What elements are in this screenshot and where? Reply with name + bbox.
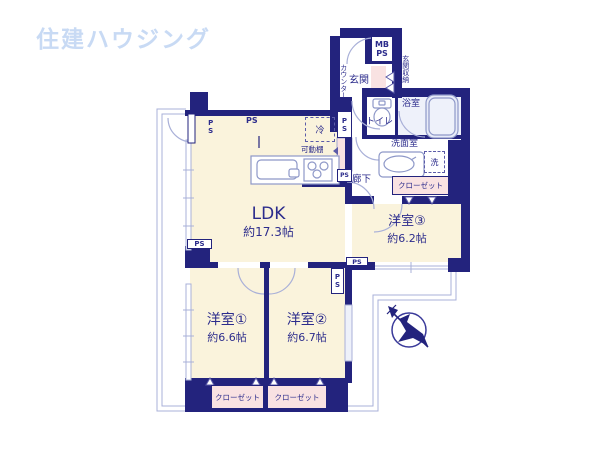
room-size-bedroom2: 約6.7帖	[272, 332, 342, 344]
hallway-label: 廊下	[352, 175, 371, 185]
ps-box-kitchen: PS	[337, 169, 352, 182]
compass-icon	[387, 305, 428, 347]
room-size-bedroom1: 約6.6帖	[192, 332, 262, 344]
closet-bedroom3: クローゼット	[392, 176, 449, 195]
ps-label-ldk-west: PS	[206, 119, 214, 135]
room-label-bedroom1: 洋室①	[192, 313, 262, 328]
vanity-icon	[379, 152, 424, 177]
fridge-box: 冷	[305, 117, 335, 142]
ps-label: PS	[376, 49, 388, 58]
room-size-bedroom3: 約6.2帖	[372, 233, 442, 245]
closet-bedroom2: クローゼット	[267, 385, 327, 409]
toilet-label: トイレ	[366, 118, 393, 128]
mb-label: MB	[375, 40, 389, 49]
closet-bedroom1: クローゼット	[211, 385, 264, 409]
washer-label: 洗	[431, 157, 439, 168]
fridge-label: 冷	[315, 123, 324, 136]
counter-label: カウンター	[339, 64, 347, 99]
movable-shelf-label: 可動棚	[301, 146, 324, 154]
bathtub-icon	[426, 95, 458, 138]
washroom-label: 洗面室	[391, 140, 418, 150]
floorplan-page: 住建ハウジング LDK 約17.3帖 洋室① 約6.6帖 洋室② 約6.7帖 洋…	[0, 0, 600, 450]
room-label-bedroom2: 洋室②	[272, 313, 342, 328]
room-size-ldk: 約17.3帖	[226, 226, 311, 239]
ps-label: PS	[341, 117, 349, 133]
floorplan-graphics	[0, 0, 600, 450]
ps-box-hall-top: PS	[337, 111, 352, 138]
ps-box-bedroom3-south: PS	[346, 257, 368, 266]
closet-label: クローゼット	[215, 392, 260, 403]
room-label-bedroom3: 洋室③	[372, 215, 442, 229]
closet-label: クローゼット	[398, 180, 443, 191]
room-label-ldk: LDK	[226, 205, 311, 224]
ps-label: PS	[340, 172, 349, 179]
ps-box-ldk-southwest: PS	[187, 239, 212, 249]
kitchen-icon	[251, 156, 339, 184]
mb-ps-box: MB PS	[371, 36, 393, 62]
ps-box-bedroom2-corner: PS	[331, 268, 344, 294]
ps-label: PS	[334, 273, 342, 289]
ps-label: PS	[352, 258, 361, 266]
washer-box: 洗	[424, 151, 445, 173]
bath-label: 浴室	[402, 100, 420, 110]
ps-label: PS	[194, 240, 204, 248]
company-logo: 住建ハウジング	[36, 20, 211, 54]
genkan-storage-label: 玄関収納	[401, 55, 409, 83]
closet-label: クローゼット	[275, 392, 320, 403]
genkan-label: 玄関	[349, 75, 369, 86]
ps-label-ldk-top: PS	[246, 117, 258, 126]
